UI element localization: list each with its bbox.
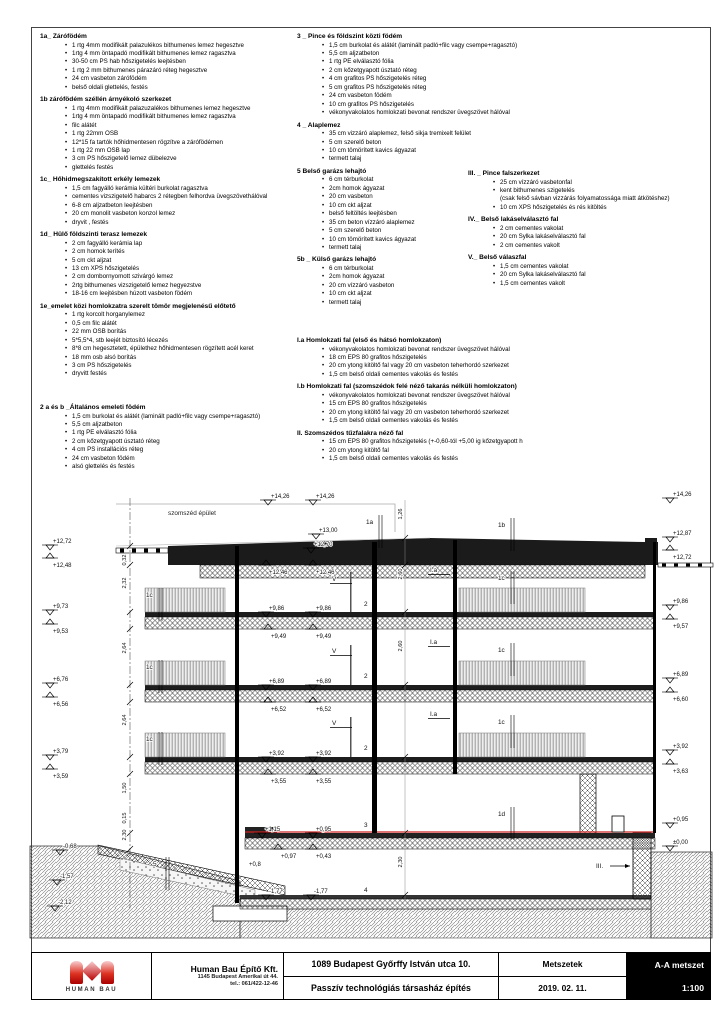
bullet-glyph: • [317,75,329,83]
spec-item: •20 cm ytong kitöltő fal vagy 20 cm vasb… [297,409,523,417]
component-label: 1d [498,811,506,818]
spec-section-III: III. _ Pince falszerkezet •25 cm vízzáró… [468,170,670,212]
bullet-glyph: • [60,455,72,463]
spec-section-II: II. Szomszédos tűzfalakra néző fal •15 c… [297,430,523,464]
spec-item: •15 cm EPS 80 grafitos hőszigetelés [297,400,523,408]
spec-item-text: belső feltöltés leejtésben [329,210,397,218]
spec-item-text: 5 cm ckt aljzat [72,257,111,265]
spec-item-text: 20 cm ytong kitöltő fal vagy 20 cm vasbe… [329,362,509,370]
component-label: I.a [430,567,438,574]
spec-item: •2 cm kőzetgyapott úsztató réteg [297,67,517,75]
component-label: 1b [498,522,506,529]
spec-item: •24 cm vasbeton födém [40,455,260,463]
elevation-marker-triangle [666,537,674,542]
elevation-marker-value: +6,52 [316,707,332,713]
floor1-slab-band [145,762,655,774]
elevation-marker-value: +12,70 [314,542,333,548]
balcony-railing [145,733,225,757]
spec-item: •5 cm ckt aljzat [40,257,267,265]
floor2-slab-line [145,685,655,690]
spec-item-text: 12*15 fa tartók hőhidmentesen rögzítve a… [72,139,223,147]
spec-item-text: 4 cm grafitos PS hőszigetelés réteg [329,75,426,83]
spec-item-text: 1,5 cm fagyálló kerámia kültéri burkolat… [72,185,208,193]
spec-item: •20 cm ytong kitöltő fal [297,447,523,455]
spec-heading: V._ Belső válaszfal [468,254,670,263]
bullet-glyph: • [317,42,329,50]
spec-item-text: 1,5 cm belső oldali cementes vakolás és … [329,371,458,379]
elevation-marker-value: +13,00 [319,528,338,534]
spec-item-text: 2 cm cementes vakolat [500,225,563,233]
dimension-label: 2,60 [398,641,404,652]
spec-items: •25 cm vízzáró vasbetonfal•kent bithumen… [468,179,670,213]
bullet-glyph: • [60,421,72,429]
elevation-marker-value: +3,55 [271,779,287,785]
floor3-slab-line [145,612,655,617]
elevation-marker-value: +6,89 [269,679,285,685]
spec-section-1e: 1e_emelet közi homlokzatra szerelt tömör… [40,303,267,379]
bullet-glyph: • [317,392,329,400]
elevation-marker-value: +6,52 [271,707,287,713]
bullet-glyph: • [60,202,72,210]
elevation-marker-value: +1,15 [265,827,281,833]
spec-item-text: 22 mm OSB borítás [72,328,126,336]
bullet-glyph: • [317,84,329,92]
elevation-marker-triangle [666,759,674,764]
bullet-glyph: • [317,400,329,408]
spec-item-text: vékonyvakolatos homlokzati bevonat rends… [329,392,510,400]
spec-item-text: 10 cm ckt aljzat [329,202,372,210]
bullet-glyph: • [60,290,72,298]
dimension-label: 1,50 [122,783,128,794]
spec-item-text: 30-50 cm PS hab hőszigetelés leejtésben [72,58,186,66]
spec-item-text: 20 cm monolit vasbeton konzol lemez [72,210,175,218]
base-slab-band [240,899,651,909]
spec-item-text: 20 cm Sylka lakáselválasztó fal [500,271,586,279]
elevation-marker-triangle [46,692,54,697]
spec-item: •20 cm monolit vasbeton konzol lemez [40,210,267,218]
spec-section-1d: 1d_ Hülő földszinti terasz lemezek •2 cm… [40,231,267,299]
bullet-glyph: • [317,236,329,244]
bullet-glyph: • [317,92,329,100]
spec-item: •1 rtg 4mm modifikált palazuzalékos bith… [40,105,267,113]
spec-item-text: termett talaj [329,155,361,163]
component-label: 3 [364,822,368,829]
spec-item-text: alsó glettelés és festés [72,463,135,471]
shade-beam [686,564,690,567]
spec-item-text: 18-16 cm leejtésben húzott vasbeton födé… [72,290,192,298]
spec-section-1c: 1c_ Hőhidmegszakított erkély lemezek •1,… [40,176,267,227]
spec-item-text: 2cm homok ágyazat [329,273,384,281]
garage-front-wall [580,774,596,834]
bullet-glyph: • [317,130,329,138]
logo-bar-left [70,961,83,984]
spec-item-text: 20 cm Sylka lakáselválasztó fal [500,233,586,241]
elevation-marker-triangle [46,764,54,769]
spec-item-text: 2 cm cementes vakolt [500,242,560,250]
bullet-glyph: • [60,429,72,437]
bullet-glyph: • [60,58,72,66]
company-cell: Human Bau Építő Kft. 1145 Budapest Ameri… [152,953,284,999]
component-label: 2 [364,601,368,608]
elevation-marker-triangle [666,846,674,851]
spec-item: •vékonyvakolatos homlokzati bevonat rend… [297,392,523,400]
bullet-glyph: • [60,155,72,163]
spec-item: •8*8 cm hegesztetett, épülethez hőhidmen… [40,345,267,353]
bullet-glyph: • [60,320,72,328]
elevation-marker-value: +14,26 [316,494,335,500]
bullet-glyph: • [60,446,72,454]
elevation-marker-value: +9,73 [53,604,69,610]
spec-item-text: 20 cm vízzáró vasbeton [329,282,394,290]
spec-items: •1,5 cm cementes vakolat•20 cm Sylka lak… [468,263,670,288]
spec-item: •2 cm cementes vakolt [468,242,670,250]
spec-item-text: 1 rtg 22 mm OSB lap [72,147,130,155]
roof-slab [168,538,658,565]
elevation-marker-triangle [666,678,674,683]
bullet-glyph: • [60,84,72,92]
base-slab-line [240,895,651,899]
title-block: HUMAN BAU Human Bau Építő Kft. 1145 Buda… [31,952,711,1000]
spec-item: •1,5 cm burkolat és alátét (laminált pad… [40,413,260,421]
bullet-glyph: • [60,219,72,227]
spec-item-text: 1,5 cm burkolat és alátét (laminált padl… [329,42,517,50]
elevation-marker-value: -0,68 [63,844,77,850]
spec-heading: I.a Homlokzati fal (első és hátsó homlok… [297,337,523,346]
bullet-glyph: • [60,193,72,201]
bullet-glyph: • [317,265,329,273]
section-drawing: szomszéd épület [0,488,724,950]
elevation-marker-value: +3,79 [53,749,69,755]
spec-item: •filc alátét [40,122,267,130]
spec-item: •10 cm tömörített kavics ágyazat [297,147,517,155]
spec-item-text: belső oldali glettelés, festés [72,84,148,92]
logo-diamond [82,961,102,981]
spec-item-text: 10 cm ckt aljzat [329,290,372,298]
project-address: 1089 Budapest Győrffy István utca 10. [284,953,498,977]
component-label: 1c [498,647,506,654]
component-label: V [332,576,337,583]
bullet-glyph: • [317,371,329,379]
partition-wall [350,572,352,612]
dimension-label: 2,30 [122,830,128,841]
logo-bar-right [101,961,114,984]
spec-items: •35 cm vizzáró alaplemez, felső sikja tr… [297,130,517,164]
spec-heading: 4 _ Alaplemez [297,122,517,131]
central-loadbearing-wall [372,542,377,833]
spec-item: •30-50 cm PS hab hőszigetelés leejtésben [40,58,267,66]
elevation-marker-value: +0,95 [673,817,689,823]
bullet-glyph: • [317,273,329,281]
spec-item: •termett talaj [297,155,517,163]
spec-heading: 1a_ Zárófödém [40,33,267,42]
dimension-label: 1,26 [398,509,404,520]
bullet-glyph: • [317,447,329,455]
component-label: I.a [430,711,438,718]
canopy-beam [132,549,136,553]
spec-item-text: 4 cm PS installációs réteg [72,446,143,454]
elevation-marker-value: +12,87 [673,531,692,537]
spec-column-1a: 1a_ Zárófödém •1 rtg 4mm modifikált pala… [40,33,267,383]
bullet-glyph: • [60,282,72,290]
spec-item: •1,5 cm burkolat és alátét (laminált pad… [297,42,517,50]
spec-item: (csak felső sávban vizzárás folyamatossá… [468,195,670,203]
spec-item-text: 1 rtg PE elválasztó fólia [329,58,394,66]
elevation-marker-value: -1,77 [314,889,328,895]
elevation-marker-value: -1,57 [60,874,74,880]
sheet-name: A-A metszet [627,953,710,976]
bullet-glyph: • [60,105,72,113]
bullet-glyph: • [317,438,329,446]
elevation-marker-value: +6,60 [673,697,689,703]
bullet-glyph: • [60,164,72,172]
bullet-glyph: • [317,202,329,210]
spec-item: •kent bithumenes szigetelés [468,187,670,195]
component-label: 2 [364,745,368,752]
spec-item-text: 2 cm kőzetgyapott úsztató réteg [72,438,160,446]
partition-wall [350,645,352,685]
spec-item: •1,5 cm belső oldali cementes vakolás és… [297,455,523,463]
spec-item: •3 cm PS hőszigetelés [40,362,267,370]
company-logo: HUMAN BAU [32,953,152,999]
elevation-marker-value: +6,89 [316,679,332,685]
spec-item: •alsó glettelés és festés [40,463,260,471]
bullet-glyph: • [488,280,500,288]
bullet-glyph: • [317,67,329,75]
spec-item: •1,5 cm belső oldali cementes vakolás és… [297,417,523,425]
bullet-glyph: • [317,244,329,252]
spec-items: •15 cm EPS 80 grafitos hőszigetelés (+-0… [297,438,523,463]
spec-item: •20 cm Sylka lakáselválasztó fal [468,271,670,279]
spec-section-IV: IV._ Belső lakáselválasztó fal •2 cm cem… [468,216,670,250]
bullet-glyph: • [60,354,72,362]
spec-item: •2 cm homok terítés [40,248,267,256]
bullet-glyph: • [317,193,329,201]
human-bau-logo-icon [70,960,114,986]
spec-item: •1,5 cm cementes vakolat [468,263,670,271]
elevation-marker-triangle [46,553,54,558]
bullet-glyph: • [60,273,72,281]
company-name: Human Bau Építő Kft. [191,964,278,974]
terrace-railing [459,661,585,685]
spec-item-text: vékonyvakolatos homlokzati bevonat rends… [329,109,510,117]
bullet-glyph: • [317,362,329,370]
elevation-marker-value: +12,72 [53,539,72,545]
dimension-label: 2,60 [398,569,404,580]
bullet-glyph: • [60,67,72,75]
bullet-glyph: • [317,282,329,290]
spec-section-Ib: I.b Homlokzati fal (szomszédok felé néző… [297,383,523,425]
bullet-glyph: • [488,225,500,233]
spec-items: •vékonyvakolatos homlokzati bevonat rend… [297,392,523,426]
spec-item-text: 1,5 cm belső oldali cementes vakolás és … [329,455,458,463]
spec-item: •1rtg 4 mm öntapadó modifikált bithumene… [40,50,267,58]
ground-hatch-bottom [240,909,651,938]
bullet-glyph: • [60,42,72,50]
bullet-glyph: • [317,50,329,58]
component-label: 1c [498,719,506,726]
bullet-glyph: • [317,409,329,417]
spec-items: •1,5 cm burkolat és alátét (laminált pad… [40,413,260,472]
bullet-glyph: • [317,155,329,163]
spec-item-text: termett talaj [329,299,361,307]
partition-wall [350,717,352,757]
spec-item-text: 18 cm EPS 80 grafitos hőszigetelés [329,354,427,362]
spec-item-text: 6-8 cm aljzatbeton leejtésben [72,202,153,210]
elevation-marker-value: +6,76 [53,677,69,683]
spec-item: •1,5 cm cementes vakolt [468,280,670,288]
bullet-glyph: • [60,147,72,155]
bullet-glyph: • [317,227,329,235]
spec-item-text: 1 rtg 4mm modifikált palazulékos bithume… [72,42,244,50]
spec-item-text: 2rtg bithumenes vizszigetelő lemez hegye… [72,282,201,290]
elevation-marker-value: +3,92 [269,751,285,757]
elevation-marker-value: +9,57 [673,624,689,630]
spec-item: •2 cm kőzetgyapott úsztató réteg [40,438,260,446]
spec-section-1a: 1a_ Zárófödém •1 rtg 4mm modifikált pala… [40,33,267,92]
spec-column-walls: I.a Homlokzati fal (első és hátsó homlok… [297,337,523,467]
bullet-glyph: • [60,139,72,147]
bullet-glyph: • [60,337,72,345]
elevation-marker-triangle [312,534,320,539]
bullet-glyph: • [60,75,72,83]
spec-item: •2 cm dombornyomott szivárgó lemez [40,273,267,281]
bullet-glyph: • [317,346,329,354]
dimension-label: 2,30 [398,857,404,868]
bullet-glyph: • [60,265,72,273]
bullet-glyph: • [488,263,500,271]
spec-item-text: 2 cm homok terítés [72,248,125,256]
project-cell: 1089 Budapest Győrffy István utca 10. Pa… [284,953,499,999]
spec-item-text: 6 cm térburkolat [329,176,373,184]
spec-item-text: 2 cm kőzetgyapott úsztató réteg [329,67,417,75]
spec-item-text: 24 cm vasbeton födém [72,455,135,463]
spec-item: •10 cm XPS hőszigetelés és rés kitöltés [468,204,670,212]
spec-item: •4 cm PS installációs réteg [40,446,260,454]
spec-item-text: 24 cm vasbeton zárófödém [72,75,147,83]
elevation-marker-value: +12,72 [673,555,692,561]
bullet-glyph: • [60,463,72,471]
spec-item: •1 rtg korcolt horganylemez [40,311,267,319]
shade-beam [674,564,678,567]
terrace-curb [612,816,624,832]
spec-item-text: dryvit , festés [72,219,108,227]
elevation-marker-triangle [666,614,674,619]
spec-item-text: glettelés festés [72,164,113,172]
bullet-glyph: • [317,109,329,117]
component-label: 4 [364,887,368,894]
drawing-sheet: 1a_ Zárófödém •1 rtg 4mm modifikált pala… [0,0,724,1024]
spec-items: •1 rtg korcolt horganylemez•0,5 cm filc … [40,311,267,379]
spec-section-4: 4 _ Alaplemez •35 cm vizzáró alaplemez, … [297,122,517,164]
shade-beam [698,564,702,567]
spec-item: •5 cm grafitos PS hőszigetelés réteg [297,84,517,92]
spec-item-text: termett talaj [329,244,361,252]
spec-section-1b: 1b zárófödém széllén árnyékoló szerkezet… [40,96,267,172]
elevation-marker-triangle [46,755,54,760]
component-label: V [332,720,337,727]
elevation-marker-value: +3,92 [316,751,332,757]
spec-item: •2rtg bithumenes vizszigetelő lemez hegy… [40,282,267,290]
elevation-marker-value: +0,43 [316,854,332,860]
spec-item: •20 cm ytong kitöltő fal vagy 20 cm vasb… [297,362,523,370]
elevation-marker-value: +9,53 [53,629,69,635]
dimension-label: 2,64 [122,715,128,726]
bullet-glyph: • [60,345,72,353]
component-label: 1c [146,664,154,671]
spec-item: •1 rtg PE elválasztó fólia [297,58,517,66]
spec-item: •4 cm grafitos PS hőszigetelés réteg [297,75,517,83]
bullet-glyph: • [60,210,72,218]
balcony-railing [145,588,225,612]
bullet-glyph: • [317,219,329,227]
spec-item-text: 5 cm szerelő beton [329,139,381,147]
spec-item-text: 2 cm fagyálló kerámia lap [72,240,142,248]
spec-item: •1rtg 4 mm öntapadó modifikált bithumene… [40,113,267,121]
spec-item-text: cementes vizszigetelő habarcs 2 rétegben… [72,193,267,201]
component-label: V [332,648,337,655]
company-address: 1145 Budapest Amerikai út 44. [198,974,278,981]
neighbor-building-outline [116,504,395,532]
component-label: 1c [146,592,154,599]
bullet-glyph: • [488,179,500,187]
spec-item-text: 24 cm vasbeton födém [329,92,392,100]
spec-item-text: 6 cm térburkolat [329,265,373,273]
spec-heading: 1d_ Hülő földszinti terasz lemezek [40,231,267,240]
spec-column-345-walls: III. _ Pince falszerkezet •25 cm vízzáró… [468,170,670,292]
spec-item: •1 rtg 22mm OSB [40,130,267,138]
spec-item: •6-8 cm aljzatbeton leejtésben [40,202,267,210]
spec-item-text: 5 cm szerelő beton [329,227,381,235]
spec-item-text: 25 cm vízzáró vasbetonfal [500,179,572,187]
spec-item-text: 8*8 cm hegesztetett, épülethez hőhidment… [72,345,254,353]
elevation-marker-value: +9,86 [673,599,689,605]
spec-item-text: 1,5 cm cementes vakolat [500,263,568,271]
elevation-marker-value: +0,97 [281,854,297,860]
elevation-marker-triangle [666,750,674,755]
spec-item-text: 2cm homok ágyazat [329,185,384,193]
bullet-glyph: • [317,290,329,298]
component-label: 1c [498,575,506,582]
bullet-glyph: • [317,185,329,193]
spec-item-text: 3 cm PS hőszigetelés [72,362,132,370]
elevation-marker-value: +9,86 [269,606,285,612]
elevation-marker-triangle [666,545,674,550]
logo-text: HUMAN BAU [66,987,117,993]
spec-item-text: 20 cm vasbeton [329,193,373,201]
spec-heading: IV._ Belső lakáselválasztó fal [468,216,670,225]
terrace-railing [459,733,585,757]
bullet-glyph: • [60,257,72,265]
bullet-glyph: • [60,370,72,378]
spec-item-text: 1,5 cm belső oldali cementes vakolás és … [329,417,458,425]
spec-item: •24 cm vasbeton zárófödém [40,75,267,83]
spec-items: •1 rtg 4mm modifikált palazulékos bithum… [40,42,267,93]
bullet-glyph: • [60,362,72,370]
spec-item: •belső oldali glettelés, festés [40,84,267,92]
terrace-railing [459,588,585,612]
canopy-beam [156,549,160,553]
bullet-glyph: • [317,58,329,66]
bullet-glyph: • [317,354,329,362]
spec-items: •vékonyvakolatos homlokzati bevonat rend… [297,346,523,380]
bullet-glyph: • [488,233,500,241]
spec-section-Ia: I.a Homlokzati fal (első és hátsó homlok… [297,337,523,379]
spec-item-text: dryvitt festés [72,370,107,378]
bullet-glyph: • [60,130,72,138]
bullet-glyph: • [488,242,500,250]
spec-item-text: 20 cm ytong kitöltő fal vagy 20 cm vasbe… [329,409,509,417]
spec-item: •1,5 cm fagyálló kerámia kültéri burkola… [40,185,267,193]
